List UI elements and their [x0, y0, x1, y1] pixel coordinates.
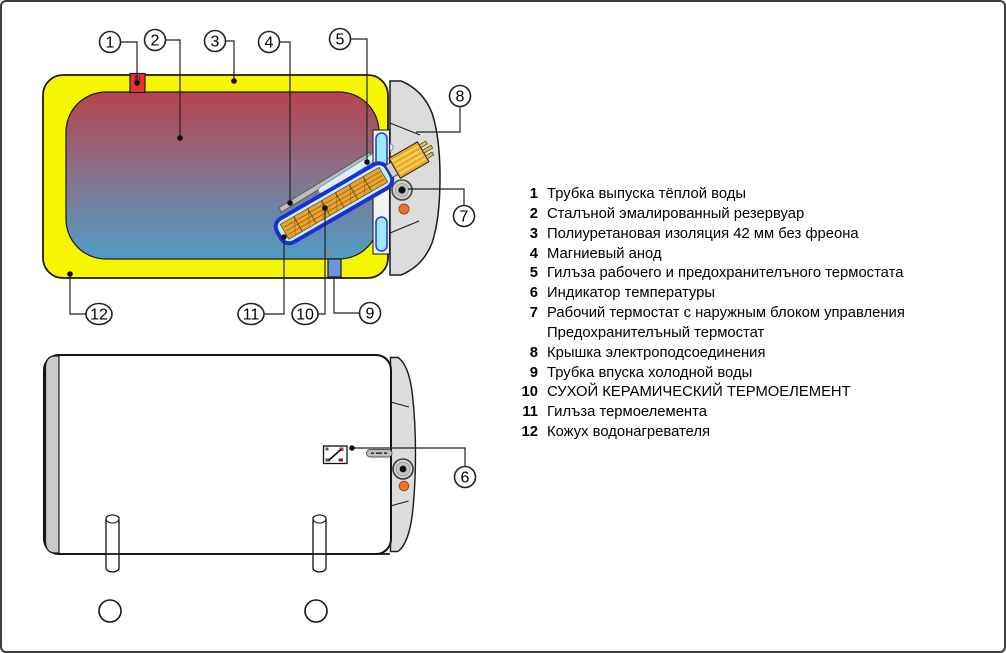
svg-text:6: 6 — [461, 470, 470, 487]
legend-item-7b: Предохранителъный термостат — [511, 324, 905, 344]
connection-pipe-left — [106, 515, 119, 572]
svg-text:5: 5 — [336, 32, 345, 49]
pipe-end-circle-right — [305, 600, 327, 622]
callout-2: 2 — [145, 30, 166, 51]
brand-label — [367, 450, 393, 458]
callout-12: 12 — [86, 304, 112, 325]
cross-section-view: 1 2 3 4 5 8 7 12 — [43, 29, 475, 325]
legend-item-3: 3 Полиуретановая изоляция 42 мм без фрео… — [511, 225, 905, 245]
left-end-band — [46, 356, 60, 553]
outer-cap — [391, 358, 416, 552]
svg-text:9: 9 — [366, 306, 375, 323]
flange-slot-bottom — [376, 217, 387, 251]
legend-item-9: 9 Трубка впуска холодной воды — [511, 364, 905, 384]
figure-frame: 1 2 3 4 5 8 7 12 — [0, 0, 1006, 653]
callout-6: 6 — [455, 467, 476, 488]
svg-text:4: 4 — [265, 35, 274, 52]
callout-10: 10 — [292, 304, 318, 325]
legend-item-1: 1 Трубка выпуска тёплой воды — [511, 185, 905, 205]
electrical-cover-cap — [390, 81, 440, 275]
callout-3: 3 — [205, 31, 226, 52]
callout-1: 1 — [100, 32, 121, 53]
svg-text:1: 1 — [106, 35, 115, 52]
svg-text:10: 10 — [296, 307, 314, 324]
svg-text:2: 2 — [151, 33, 160, 50]
legend-item-4: 4 Магниевый анод — [511, 245, 905, 265]
legend-item-10: 10 СУХОЙ КЕРАМИЧЕСКИЙ ТЕРМОЕЛЕМЕНТ — [511, 383, 905, 403]
cold-water-inlet-pipe — [328, 259, 341, 277]
svg-text:7: 7 — [460, 209, 469, 226]
pilot-light-outer — [399, 481, 409, 491]
outer-view: 6 — [44, 355, 476, 622]
leader-dot-6 — [349, 445, 355, 451]
temperature-indicator — [324, 446, 348, 464]
legend-item-7: 7 Рабочий термостат с наружным блоком уп… — [511, 304, 905, 324]
svg-text:8: 8 — [456, 89, 465, 106]
callout-7: 7 — [454, 206, 475, 227]
legend-item-6: 6 Индикатор температуры — [511, 284, 905, 304]
legend-item-2: 2 Сталъной эмалированный резервуар — [511, 205, 905, 225]
svg-text:11: 11 — [243, 307, 260, 324]
pilot-light — [399, 204, 409, 214]
callout-11: 11 — [238, 304, 264, 325]
thermostat-knob — [392, 180, 412, 200]
callout-9: 9 — [360, 303, 381, 324]
callout-8: 8 — [450, 86, 471, 107]
thermostat-knob-outer — [393, 459, 413, 479]
callout-5: 5 — [330, 29, 351, 50]
connection-pipe-right — [313, 515, 326, 572]
legend-item-11: 11 Гилъза термоелемента — [511, 403, 905, 423]
legend-item-12: 12 Кожух водонагревателя — [511, 423, 905, 443]
svg-text:12: 12 — [90, 307, 108, 324]
svg-text:3: 3 — [211, 34, 220, 51]
legend: 1 Трубка выпуска тёплой воды 2 Сталъной … — [511, 185, 905, 443]
legend-item-8: 8 Крышка электроподсоединения — [511, 344, 905, 364]
callout-4: 4 — [259, 32, 280, 53]
pipe-end-circle-left — [99, 600, 121, 622]
legend-item-5: 5 Гилъза рабочего и предохранителъного т… — [511, 264, 905, 284]
